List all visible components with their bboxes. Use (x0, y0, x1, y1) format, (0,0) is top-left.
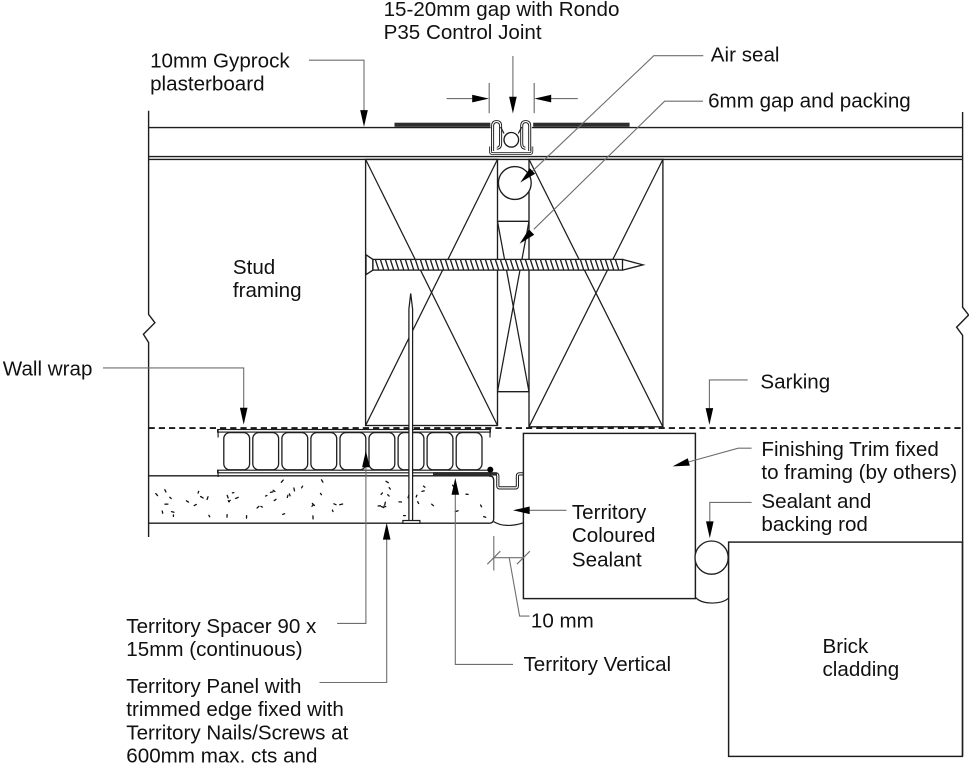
svg-text:backing rod: backing rod (761, 513, 867, 536)
svg-text:Stud: Stud (233, 256, 275, 279)
svg-text:Sealant and: Sealant and (761, 490, 871, 513)
svg-text:trimmed edge fixed with: trimmed edge fixed with (126, 698, 343, 721)
svg-text:10 mm: 10 mm (531, 609, 594, 632)
svg-text:Finishing Trim fixed: Finishing Trim fixed (761, 438, 938, 461)
svg-text:6mm gap and packing: 6mm gap and packing (708, 90, 911, 113)
svg-text:Territory Nails/Screws at: Territory Nails/Screws at (126, 721, 348, 744)
svg-text:10mm Gyprock: 10mm Gyprock (150, 49, 290, 72)
svg-text:framing: framing (233, 279, 302, 302)
svg-text:cladding: cladding (823, 658, 900, 681)
svg-text:15-20mm gap with Rondo: 15-20mm gap with Rondo (384, 0, 620, 21)
svg-text:Brick: Brick (823, 635, 869, 658)
svg-text:P35 Control Joint: P35 Control Joint (384, 21, 542, 44)
svg-text:Territory Spacer 90 x: Territory Spacer 90 x (126, 615, 317, 638)
svg-text:Coloured: Coloured (572, 524, 656, 547)
svg-text:Wall wrap: Wall wrap (3, 358, 93, 381)
svg-text:Sealant: Sealant (572, 548, 642, 571)
svg-text:600mm max. cts and: 600mm max. cts and (126, 745, 317, 768)
svg-text:Territory Vertical: Territory Vertical (524, 653, 672, 676)
svg-text:15mm (continuous): 15mm (continuous) (126, 638, 302, 661)
svg-text:Territory Panel with: Territory Panel with (126, 675, 301, 698)
svg-text:to framing (by others): to framing (by others) (761, 461, 957, 484)
svg-text:Sarking: Sarking (760, 371, 830, 394)
svg-text:Air seal: Air seal (711, 44, 780, 67)
svg-text:Territory: Territory (572, 501, 647, 524)
svg-text:plasterboard: plasterboard (150, 73, 264, 96)
